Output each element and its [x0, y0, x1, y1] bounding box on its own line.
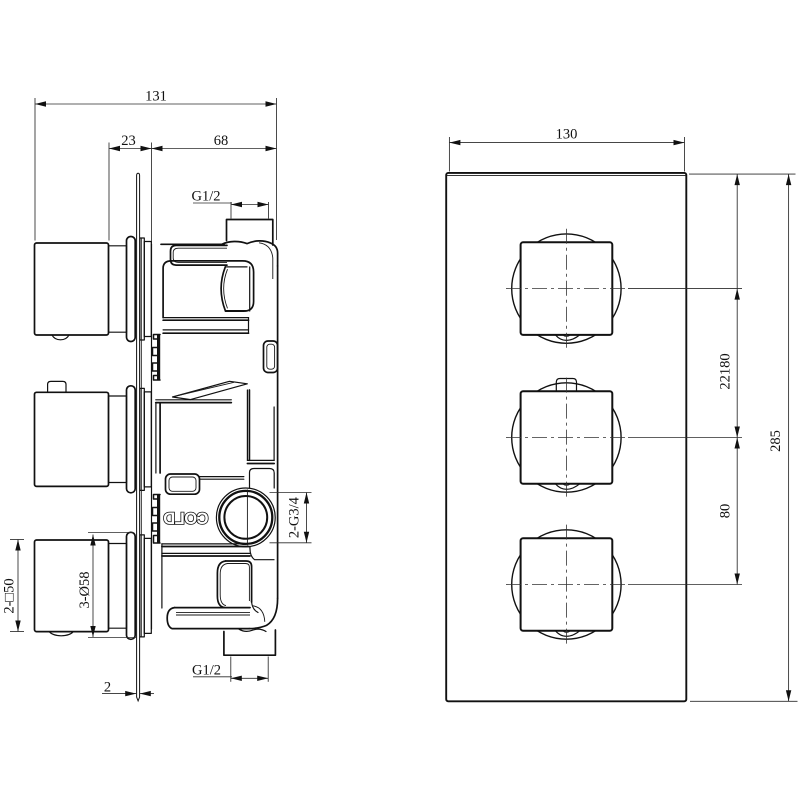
svg-text:285: 285 — [768, 430, 784, 452]
svg-text:2-□50: 2-□50 — [2, 578, 18, 613]
svg-text:23: 23 — [121, 133, 136, 149]
svg-text:G1/2: G1/2 — [192, 663, 221, 679]
svg-text:COLD: COLD — [163, 510, 208, 528]
svg-text:131: 131 — [145, 89, 167, 105]
svg-text:3-Ø58: 3-Ø58 — [77, 571, 93, 608]
svg-text:68: 68 — [214, 133, 229, 149]
svg-text:G1/2: G1/2 — [192, 189, 221, 205]
svg-text:2: 2 — [104, 680, 111, 696]
svg-text:130: 130 — [556, 127, 578, 143]
svg-text:2-G3/4: 2-G3/4 — [287, 496, 303, 538]
svg-text:22180: 22180 — [718, 353, 734, 389]
svg-text:80: 80 — [718, 504, 734, 519]
